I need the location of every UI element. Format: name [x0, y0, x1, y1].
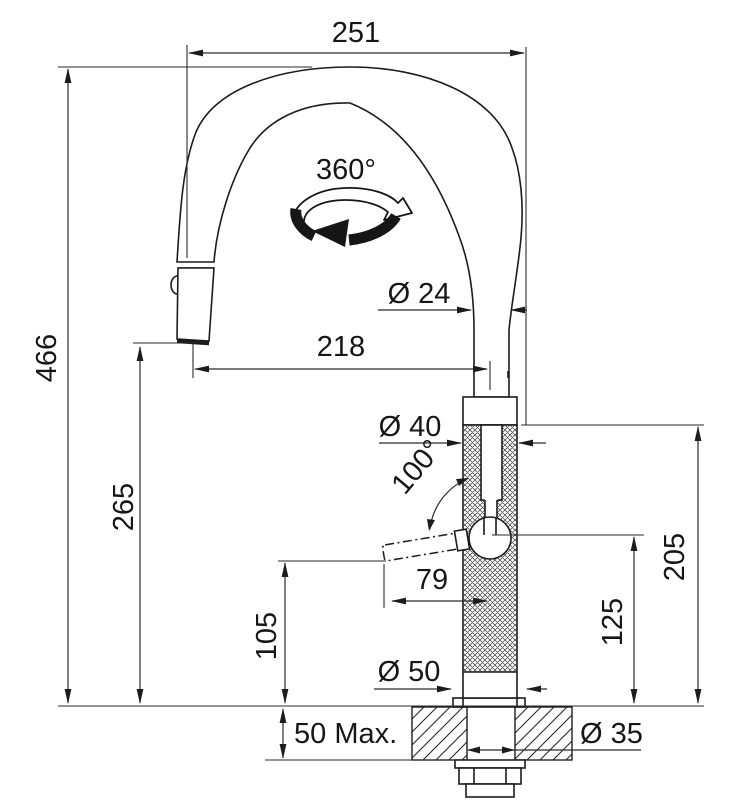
- faucet-dimension-drawing: 251 360° Ø 24 218 466 Ø 40 100° 265 79 2…: [0, 0, 755, 800]
- dim-body-top-height-label: 205: [659, 533, 691, 581]
- swivel-band-right: [349, 216, 396, 240]
- lever-handle: [382, 529, 469, 561]
- body-collar: [463, 397, 517, 425]
- dim-outlet-height-label: 265: [108, 483, 140, 531]
- dim-hole-dia-arrow-right: [502, 747, 515, 754]
- dim-lever-angle-arc: [430, 479, 467, 529]
- lever-arm-phantom: [382, 533, 460, 561]
- worktop-left-hatch: [412, 707, 467, 760]
- dimension-lines: [68, 53, 698, 758]
- lever-pivot-ball: [469, 517, 511, 559]
- dim-hole-dia-arrow-left: [467, 747, 480, 754]
- lever-hub: [454, 529, 469, 551]
- spray-head: [171, 268, 214, 343]
- technical-drawing-canvas: 251 360° Ø 24 218 466 Ø 40 100° 265 79 2…: [0, 0, 755, 800]
- worktop-right-hatch: [515, 707, 572, 760]
- mounting-nut: [459, 768, 521, 784]
- dimension-labels: 251 360° Ø 24 218 466 Ø 40 100° 265 79 2…: [31, 17, 691, 750]
- dim-reach-label: 218: [317, 331, 365, 363]
- mounting-washer: [455, 760, 525, 768]
- dim-lever-angle-label: 100°: [386, 434, 449, 501]
- worktop-section: [412, 707, 572, 760]
- dim-body-dia-label: Ø 40: [379, 411, 442, 443]
- dim-lever-length-label: 79: [416, 564, 448, 596]
- dim-lever-angle-arrow-bottom: [427, 519, 435, 531]
- dim-worktop-thickness-label: 50 Max.: [294, 718, 397, 750]
- dim-spout-width-label: 251: [332, 17, 380, 49]
- threaded-shank-end: [466, 784, 514, 797]
- extension-lines: [58, 45, 704, 760]
- cartridge-stem-fill: [485, 498, 498, 519]
- dim-lever-clearance-label: 105: [251, 612, 283, 660]
- dim-swivel-angle-label: 360°: [316, 154, 376, 186]
- swivel-symbol: [293, 188, 412, 247]
- spray-head-body: [177, 268, 214, 341]
- swivel-arrow-counterclockwise: [312, 219, 349, 247]
- dim-spout-dia-label: Ø 24: [388, 278, 451, 310]
- faucet-body: [463, 397, 517, 698]
- mounting-hardware: [455, 760, 525, 797]
- dim-hole-dia-label: Ø 35: [580, 718, 643, 750]
- cartridge-slot: [481, 425, 502, 500]
- dim-overall-height-label: 466: [31, 334, 63, 382]
- dim-pivot-height-label: 125: [597, 598, 629, 646]
- dim-base-dia-label: Ø 50: [378, 656, 441, 688]
